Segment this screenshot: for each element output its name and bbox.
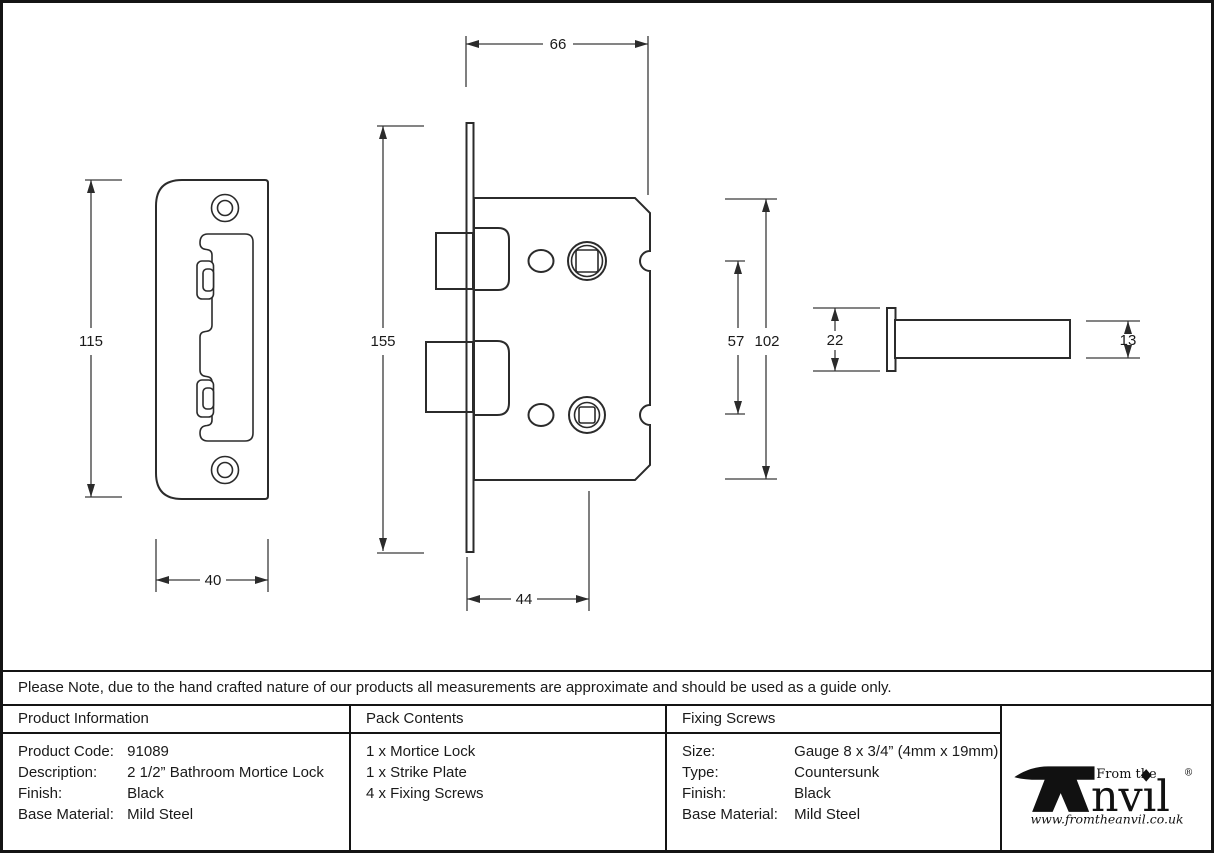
- list-item: 4 x Fixing Screws: [366, 783, 661, 804]
- product-information-section: Product Information Product Code: 91089 …: [3, 706, 349, 850]
- table-row: Size: Gauge 8 x 3/4” (4mm x 19mm): [682, 741, 996, 762]
- turn-square-hole: [579, 407, 595, 423]
- row-value: 2 1/2” Bathroom Mortice Lock: [127, 764, 324, 781]
- fixing-hole-top: [529, 250, 554, 272]
- technical-drawing-area: 115 40 155 66: [3, 3, 1211, 670]
- table-row: Product Code: 91089: [18, 741, 345, 762]
- strike-plate-drawing: [156, 180, 268, 499]
- dimension-value: 22: [827, 332, 844, 349]
- list-item: 1 x Mortice Lock: [366, 741, 661, 762]
- dimension-value: 115: [79, 333, 103, 350]
- table-row: Description: 2 1/2” Bathroom Mortice Loc…: [18, 762, 345, 783]
- row-value: Black: [127, 785, 164, 802]
- deadbolt-inner: [474, 341, 509, 415]
- faceplate: [467, 123, 474, 552]
- fixing-screws-section: Fixing Screws Size: Gauge 8 x 3/4” (4mm …: [665, 706, 1000, 850]
- row-value: Black: [794, 785, 831, 802]
- dim-faceplate-height: 155: [370, 126, 424, 553]
- anvil-icon: [1014, 766, 1094, 811]
- dim-hub-spacing: 57: [725, 261, 745, 414]
- latch-bolt-inner: [474, 228, 509, 290]
- spindle-bar: [895, 320, 1070, 358]
- product-information-header: Product Information: [3, 706, 349, 734]
- table-row: Finish: Black: [18, 783, 345, 804]
- dim-lock-body-width: 66: [466, 36, 648, 195]
- fixing-screws-header: Fixing Screws: [667, 706, 1000, 734]
- row-label: Type:: [682, 762, 790, 783]
- row-label: Description:: [18, 762, 123, 783]
- pack-contents-header: Pack Contents: [351, 706, 665, 734]
- row-label: Base Material:: [682, 804, 790, 825]
- measurement-note-text: Please Note, due to the hand crafted nat…: [18, 679, 892, 696]
- screw-hole-bottom-inner: [218, 463, 233, 478]
- dim-spindle-bar-height: 13: [1086, 321, 1140, 358]
- dim-strike-plate-height: 115: [79, 180, 122, 497]
- dimension-value: 155: [370, 333, 395, 350]
- list-item: 1 x Strike Plate: [366, 762, 661, 783]
- fixing-hole-bottom: [529, 404, 554, 426]
- pack-contents-section: Pack Contents 1 x Mortice Lock 1 x Strik…: [349, 706, 665, 850]
- pack-contents-body: 1 x Mortice Lock 1 x Strike Plate 4 x Fi…: [351, 734, 665, 804]
- dimension-value: 40: [205, 572, 222, 589]
- product-information-body: Product Code: 91089 Description: 2 1/2” …: [3, 734, 349, 825]
- table-row: Finish: Black: [682, 783, 996, 804]
- product-datasheet: 115 40 155 66: [0, 0, 1214, 853]
- logo-website-text: www.fromtheanvil.co.uk: [1030, 811, 1183, 826]
- spindle-square-hole: [576, 250, 598, 272]
- latch-keep-tab-top-inner: [203, 269, 214, 291]
- product-info-table: Product Information Product Code: 91089 …: [3, 704, 1211, 850]
- row-value: Gauge 8 x 3/4” (4mm x 19mm): [794, 743, 998, 760]
- measurement-note-bar: Please Note, due to the hand crafted nat…: [3, 670, 1211, 704]
- table-row: Type: Countersunk: [682, 762, 996, 783]
- dimension-value: 44: [516, 591, 533, 608]
- row-label: Base Material:: [18, 804, 123, 825]
- row-label: Finish:: [18, 783, 123, 804]
- dimension-value: 57: [728, 333, 745, 350]
- mortice-lock-technical-drawing: 115 40 155 66: [3, 3, 1211, 670]
- spindle-drawing: [887, 308, 1070, 371]
- row-value: Mild Steel: [127, 806, 193, 823]
- row-label: Finish:: [682, 783, 790, 804]
- latch-keep-tab-bottom-inner: [203, 388, 214, 409]
- table-row: Base Material: Mild Steel: [682, 804, 996, 825]
- brand-logo-cell: From the nvıl ® www.fromtheanvil.co.uk: [1000, 706, 1211, 850]
- dimension-value: 102: [754, 333, 779, 350]
- row-value: Countersunk: [794, 764, 879, 781]
- dim-strike-plate-width: 40: [156, 539, 268, 592]
- row-label: Size:: [682, 741, 790, 762]
- lock-body-drawing: [426, 123, 650, 552]
- table-row: Base Material: Mild Steel: [18, 804, 345, 825]
- from-the-anvil-logo: From the nvıl ® www.fromtheanvil.co.uk: [1009, 729, 1205, 827]
- dimension-value: 66: [550, 36, 567, 53]
- dim-spindle-rose-width: 22: [813, 308, 880, 371]
- registered-trademark-symbol: ®: [1183, 767, 1193, 778]
- dim-backset: 44: [467, 491, 589, 611]
- row-value: Mild Steel: [794, 806, 860, 823]
- screw-hole-top-inner: [218, 201, 233, 216]
- dimension-value: 13: [1120, 332, 1137, 349]
- row-value: 91089: [127, 743, 169, 760]
- row-label: Product Code:: [18, 741, 123, 762]
- fixing-screws-body: Size: Gauge 8 x 3/4” (4mm x 19mm) Type: …: [667, 734, 1000, 825]
